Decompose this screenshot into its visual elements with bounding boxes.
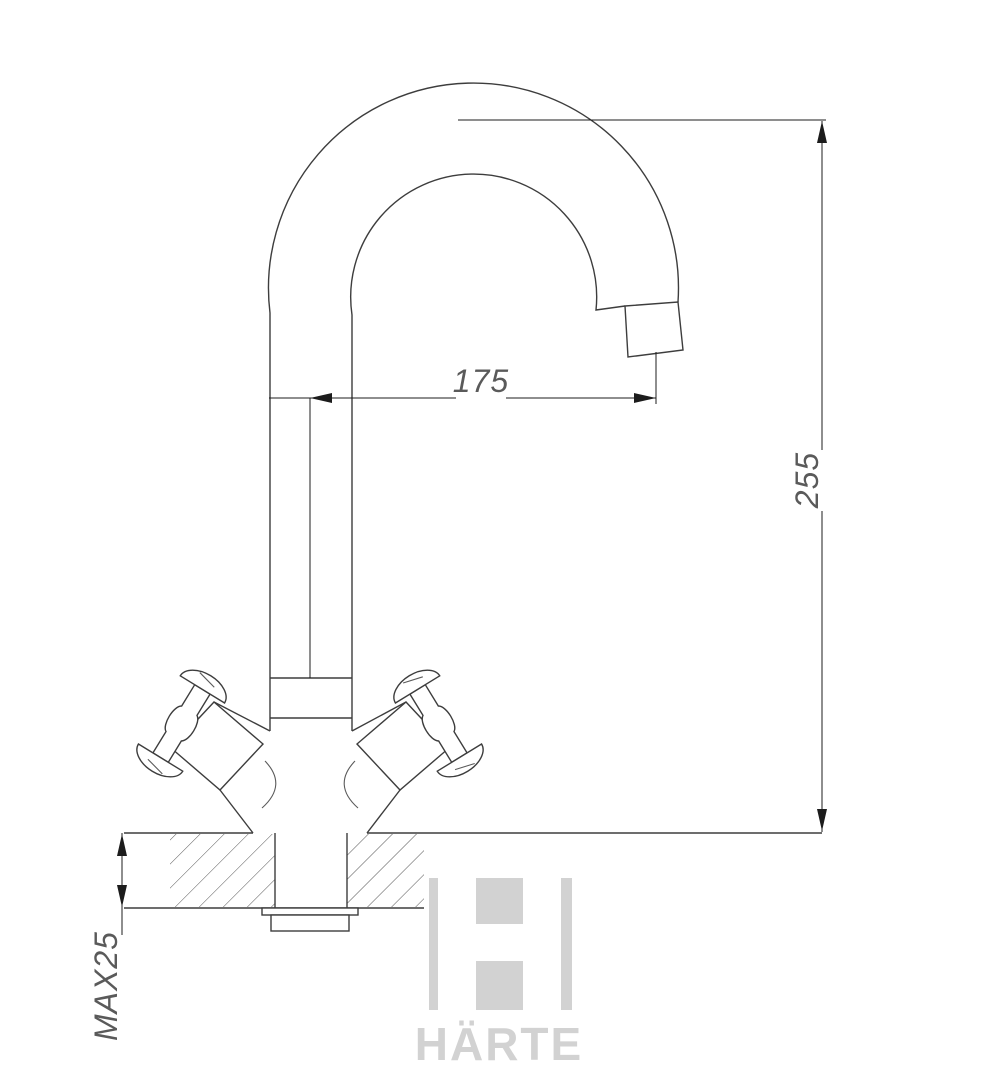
dimension-spout-reach: 175	[269, 352, 656, 404]
mounting-washer	[262, 908, 358, 915]
countertop-section	[124, 833, 822, 931]
watermark-logo-square-bottom	[476, 961, 523, 1010]
body-left-base-edge	[220, 790, 253, 833]
watermark: HÄRTE	[415, 878, 583, 1070]
arrowhead-down	[817, 809, 827, 831]
arrowhead-up-small	[117, 834, 127, 856]
arrowhead-right	[634, 393, 656, 403]
counter-hatch-right	[347, 834, 424, 907]
mounting-nut	[271, 915, 349, 931]
dim-175-label: 175	[453, 363, 509, 399]
technical-drawing: HÄRTE	[0, 0, 1000, 1080]
faucet	[130, 83, 683, 833]
dimension-overall-height: 255	[458, 120, 827, 832]
dim-max25-label: MAX25	[88, 931, 124, 1041]
spout-aerator	[625, 302, 683, 357]
dim-255-label: 255	[789, 452, 825, 509]
watermark-brand-text: HÄRTE	[415, 1018, 583, 1070]
dimension-deck-thickness: MAX25	[88, 833, 127, 1041]
body-accent-arc-right	[344, 761, 358, 808]
watermark-logo-bar-right	[561, 878, 572, 1010]
body-accent-arc-left	[262, 761, 276, 808]
watermark-logo-square-top	[476, 878, 523, 924]
arrowhead-down-small	[117, 885, 127, 907]
body-right-base-edge	[367, 790, 400, 833]
arrowhead-left	[310, 393, 332, 403]
drawing-canvas: HÄRTE	[0, 0, 1000, 1080]
counter-hatch-left	[170, 834, 275, 907]
watermark-logo-bar-left	[429, 878, 438, 1010]
spout-outer-edge	[268, 83, 678, 731]
spout-inner-edge	[351, 174, 625, 731]
arrowhead-up	[817, 121, 827, 143]
